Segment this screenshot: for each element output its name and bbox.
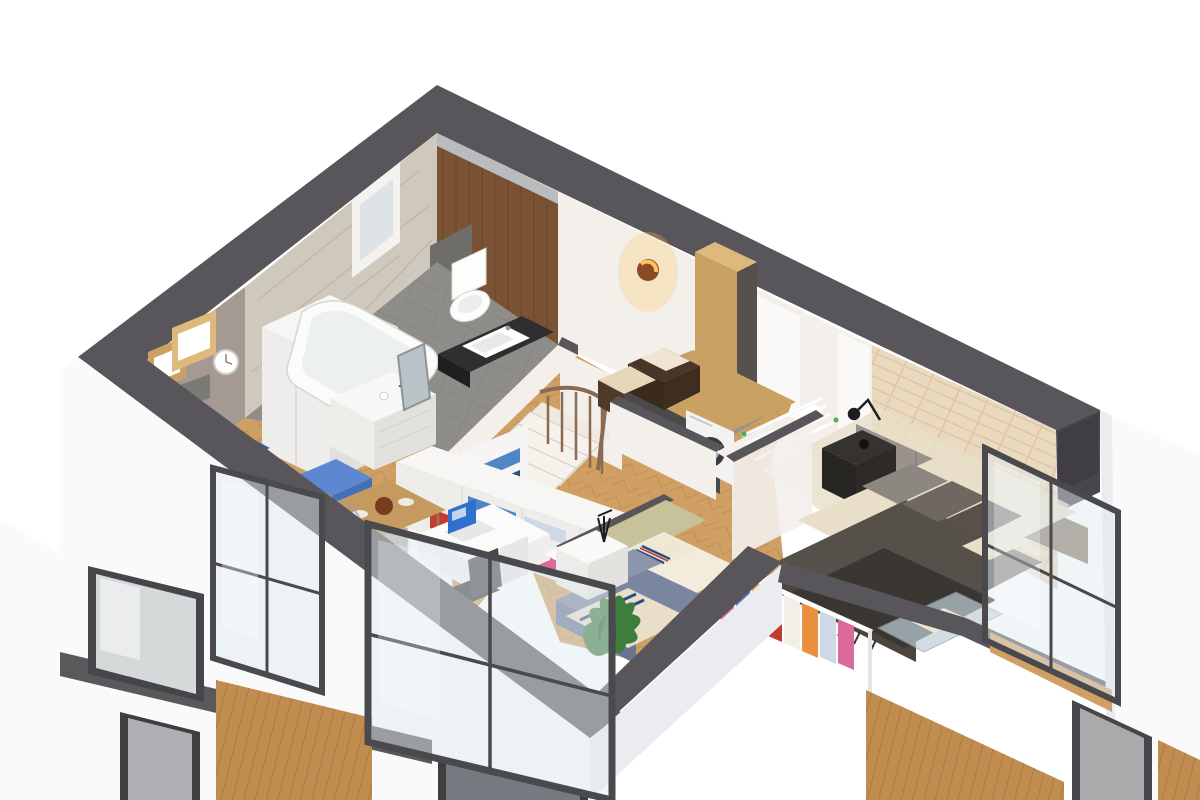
wall-clock [214,350,238,374]
leaning-mirror [398,344,430,410]
isometric-scene [0,0,1200,800]
balcony-glazing-left-1 [213,468,322,692]
copper-sconce [618,232,678,312]
floorplan-render [0,0,1200,800]
